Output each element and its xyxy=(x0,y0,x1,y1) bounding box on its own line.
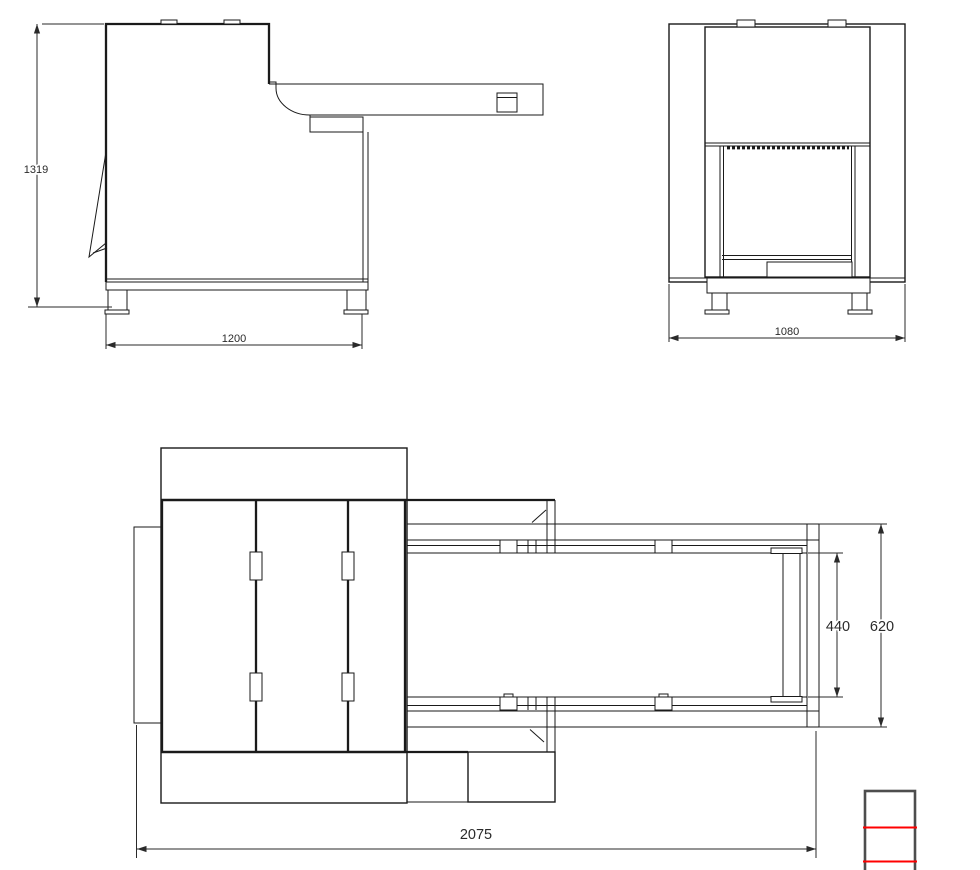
top-left-panel xyxy=(134,527,161,723)
dimension-2075: 2075 xyxy=(137,725,817,858)
roller-bearing-plate xyxy=(771,548,802,554)
roller-bearing-plate xyxy=(771,697,802,703)
top-door-area xyxy=(162,500,405,752)
front-foot-plate xyxy=(705,310,729,314)
rail-clamp xyxy=(500,697,517,710)
dimension-label-2075: 2075 xyxy=(460,827,492,843)
front-base-bar xyxy=(707,278,870,293)
front-inner-cabinet xyxy=(705,27,870,277)
side-corner-arc xyxy=(269,82,310,115)
top-arm-diagonal xyxy=(532,510,546,523)
door-hinge xyxy=(342,673,354,701)
top-bottom-right-box xyxy=(468,752,555,802)
rail-clamp xyxy=(655,697,672,710)
top-view xyxy=(134,448,819,803)
dimension-label-1319: 1319 xyxy=(24,164,48,176)
top-arm-diagonal xyxy=(530,730,544,743)
side-foot-plate xyxy=(105,310,129,314)
side-base-rail xyxy=(106,282,368,290)
front-under-belt-box xyxy=(767,262,852,277)
side-cabinet-outline xyxy=(106,24,269,282)
side-control-box xyxy=(497,93,517,112)
reference-block-frame xyxy=(865,791,915,870)
front-top-tab xyxy=(828,20,846,27)
side-view xyxy=(89,20,543,314)
side-top-tab xyxy=(224,20,240,24)
side-leg xyxy=(347,290,366,310)
door-hinge xyxy=(250,552,262,580)
side-step-block xyxy=(310,115,363,132)
dimension-1319: 1319 xyxy=(24,24,112,307)
technical-drawing: 1319 1200 xyxy=(0,0,980,870)
reference-block xyxy=(863,791,917,870)
side-foot-plate xyxy=(344,310,368,314)
front-leg xyxy=(852,293,867,310)
front-foot-plate xyxy=(848,310,872,314)
rail-clamp xyxy=(655,540,672,553)
rail-clamp xyxy=(500,540,517,553)
top-cabinet-outer xyxy=(161,448,407,803)
side-top-tab xyxy=(161,20,177,24)
front-view xyxy=(669,20,905,314)
dimension-1200: 1200 xyxy=(106,314,362,349)
dimension-label-1200: 1200 xyxy=(222,333,246,345)
front-top-tab xyxy=(737,20,755,27)
door-hinge xyxy=(342,552,354,580)
dimension-label-620: 620 xyxy=(870,619,894,635)
dimension-440: 440 xyxy=(808,553,850,697)
drawing-canvas: 1319 1200 xyxy=(0,0,980,870)
dimension-label-1080: 1080 xyxy=(775,326,799,338)
front-leg xyxy=(712,293,727,310)
side-flap xyxy=(89,152,106,257)
dimension-label-440: 440 xyxy=(826,619,850,635)
door-hinge xyxy=(250,673,262,701)
